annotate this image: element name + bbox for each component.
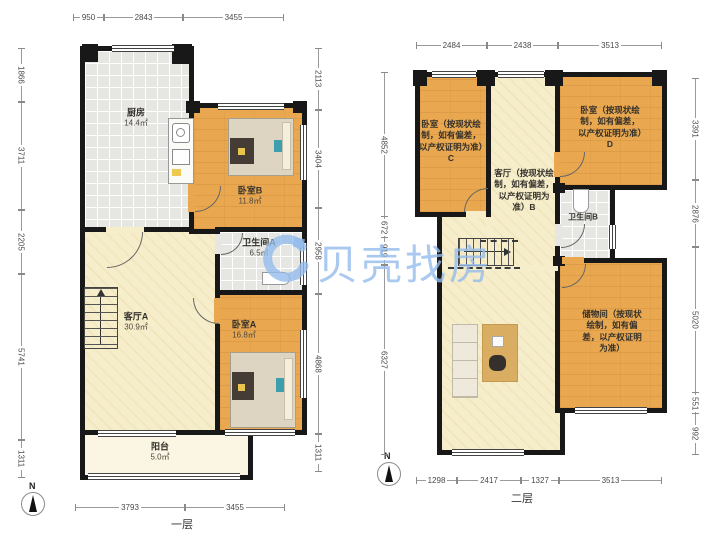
door-gap [466,211,486,218]
kitchen-stove [172,149,190,165]
bath-a-sink [262,272,290,285]
dim-f2-left-3: 6327 [377,265,391,455]
opening-dashed-line [480,240,518,242]
dim-f1-right-3: 4868 [311,294,325,434]
side-table [492,336,504,347]
dim-f2-top-1: 2438 [487,38,558,52]
kitchen-item [172,169,181,176]
door-gap [562,257,584,264]
floorplan-canvas: 厨房14.4㎡ 卧室B11.8㎡ 卫生间A6.5㎡ 客厅A30.9㎡ 卧室A16… [0,0,720,540]
bed-pillows [284,358,293,420]
dim-f1-right-1: 3404 [311,110,325,208]
dim-f2-right-2: 5020 [688,247,702,393]
wall-pier [186,101,200,113]
dim-f1-left-2: 2205 [14,210,28,274]
wall-pier [652,70,667,86]
bed-throw [274,140,282,152]
label-bedroom-b: 卧室B11.8㎡ [238,185,263,208]
opening-dashed-line [448,267,520,269]
dim-f2-bottom-3: 3513 [559,473,662,487]
dim-f1-bottom-0: 3793 [75,500,185,514]
compass-icon [377,462,401,486]
bed-throw [276,378,284,392]
label-bedroom-a: 卧室A16.8㎡ [232,319,257,342]
wall-pier [477,70,495,86]
wall-pier [413,70,427,86]
wall-pier [293,101,307,113]
dim-f1-left-0: 1866 [14,48,28,102]
window [300,330,307,398]
window [218,103,284,110]
wardrobe-knob [238,384,245,391]
armchair [489,355,506,371]
dim-f2-left-1: 672 [377,217,391,237]
window [452,449,524,456]
label-bedroom-d: 卧室（按现状绘制，如有偏差，以产权证明为准）D [577,105,643,151]
window [498,71,544,78]
dim-f1-bottom-1: 3455 [185,500,285,514]
dim-f2-right-0: 3391 [688,78,702,180]
window [112,45,174,52]
wall-pier [545,70,563,86]
dim-f1-left-4: 1311 [14,440,28,478]
dim-f1-left-1: 3711 [14,102,28,210]
bed-pillows [282,122,291,170]
label-balcony: 阳台5.0㎡ [150,441,169,464]
label-bedroom-c: 卧室（按现状绘制，如有偏差，以产权证明为准）C [419,119,483,165]
window [300,125,307,180]
window [609,225,616,249]
dim-f2-top-0: 2484 [416,38,487,52]
wall-pier [172,44,192,64]
dim-f2-left-0: 4852 [377,72,391,217]
compass-north-label: N [29,481,36,491]
kitchen-sink-bowl [176,128,185,137]
window [575,407,647,414]
label-storage: 储物间（按现状绘制，如有偏差，以产权证明为准） [579,309,645,355]
dim-f2-left-2: 919 [377,237,391,265]
sofa [452,324,478,398]
dim-f2-right-1: 2876 [688,180,702,247]
dim-f1-top-0: 950 [73,10,104,24]
window [432,71,476,78]
balcony-slider-window [98,430,176,437]
dim-f2-bottom-2: 1327 [521,473,559,487]
label-bath-a: 卫生间A6.5㎡ [242,237,276,260]
floor2-caption: 二层 [498,490,546,506]
dim-f2-right-4: 992 [688,413,702,455]
staircase-floor2 [458,238,514,266]
label-kitchen: 厨房14.4㎡ [124,107,148,130]
floor1-caption: 一层 [158,516,206,532]
window [225,429,295,436]
label-hall-b: 客厅（按现状绘制，如有偏差，以产权证明为准）B [493,168,555,214]
label-bath-b: 卫生间B [568,213,598,224]
dim-f2-bottom-0: 1298 [416,473,457,487]
wardrobe-knob [238,148,245,155]
dim-f1-top-1: 2843 [104,10,183,24]
label-living-a: 客厅A30.9㎡ [124,311,149,334]
window [88,473,240,480]
bath-b-toilet [573,189,589,213]
dim-f1-right-4: 1311 [311,434,325,472]
dim-f1-right-2: 2958 [311,208,325,294]
staircase-floor1 [84,287,118,349]
door-gap [188,184,195,212]
dim-f2-top-2: 3513 [558,38,662,52]
dim-f2-right-3: 551 [688,393,702,413]
wall-pier [82,44,98,62]
dim-f1-left-3: 5741 [14,274,28,440]
rug [482,324,518,382]
dim-f1-top-2: 3455 [183,10,284,24]
window [300,243,307,285]
dim-f1-right-0: 2113 [311,48,325,110]
dim-f2-bottom-1: 2417 [457,473,521,487]
compass-icon [21,492,45,516]
